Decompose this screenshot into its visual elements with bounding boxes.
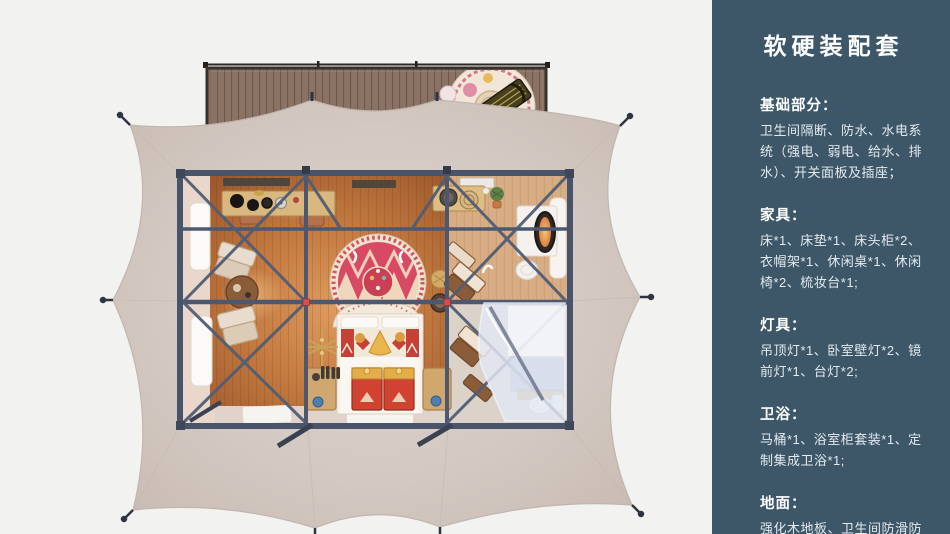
section-body: 马桶*1、浴室柜套装*1、定制集成卫浴*1; [760,429,930,471]
gold-dish [254,190,264,196]
ceiling-vent [223,178,290,186]
red-item [293,197,299,203]
pillow [382,317,419,328]
beam-end [443,166,451,174]
beam-end [302,166,310,174]
hat [230,194,244,208]
frame-connector [444,299,451,306]
section-body: 床*1、床垫*1、床头柜*2、衣帽架*1、休闲桌*1、休闲椅*2、梳妆台*1; [760,230,930,293]
deck-pillow [440,86,456,102]
bed [333,300,423,414]
hat [247,199,259,211]
section-heading: 地面： [760,492,930,513]
section-heading: 基础部分： [760,94,930,115]
frame-connector [303,299,310,306]
spec-sidebar: 软硬装配套 基础部分： 卫生间隔断、防水、水电系统（强电、弱电、给水、排水）、开… [712,0,950,534]
section-heading: 卫浴： [760,403,930,424]
room-interior [176,166,574,446]
kettle [262,198,272,208]
spec-section-basics: 基础部分： 卫生间隔断、防水、水电系统（强电、弱电、给水、排水）、开关面板及插座… [760,94,930,183]
side-window [190,203,210,270]
ceiling-vent [352,180,396,188]
spec-section-bathroom: 卫浴： 马桶*1、浴室柜套装*1、定制集成卫浴*1; [760,403,930,471]
pillow [341,317,378,328]
cushion [355,333,365,343]
section-body: 卫生间隔断、防水、水电系统（强电、弱电、给水、排水）、开关面板及插座； [760,120,930,183]
section-heading: 家具： [760,204,930,225]
slide: 软硬装配套 基础部分： 卫生间隔断、防水、水电系统（强电、弱电、给水、排水）、开… [0,0,950,534]
floor-mat [243,405,292,424]
sidebar-title: 软硬装配套 [712,27,950,61]
section-heading: 灯具： [760,314,930,335]
cushion [395,332,405,342]
floorplan-render [0,0,712,534]
spec-section-flooring: 地面： 强化木地板、卫生间防滑防潮石塑板; [760,492,930,534]
tent-floorplan-svg [0,0,712,534]
spec-section-furniture: 家具： 床*1、床垫*1、床头柜*2、衣帽架*1、休闲桌*1、休闲椅*2、梳妆台… [760,204,930,293]
section-body: 吊顶灯*1、卧室壁灯*2、镜前灯*1、台灯*2; [760,340,930,382]
spec-section-lighting: 灯具： 吊顶灯*1、卧室壁灯*2、镜前灯*1、台灯*2; [760,314,930,382]
section-body: 强化木地板、卫生间防滑防潮石塑板; [760,518,930,534]
spec-sections: 基础部分： 卫生间隔断、防水、水电系统（强电、弱电、给水、排水）、开关面板及插座… [712,61,950,534]
